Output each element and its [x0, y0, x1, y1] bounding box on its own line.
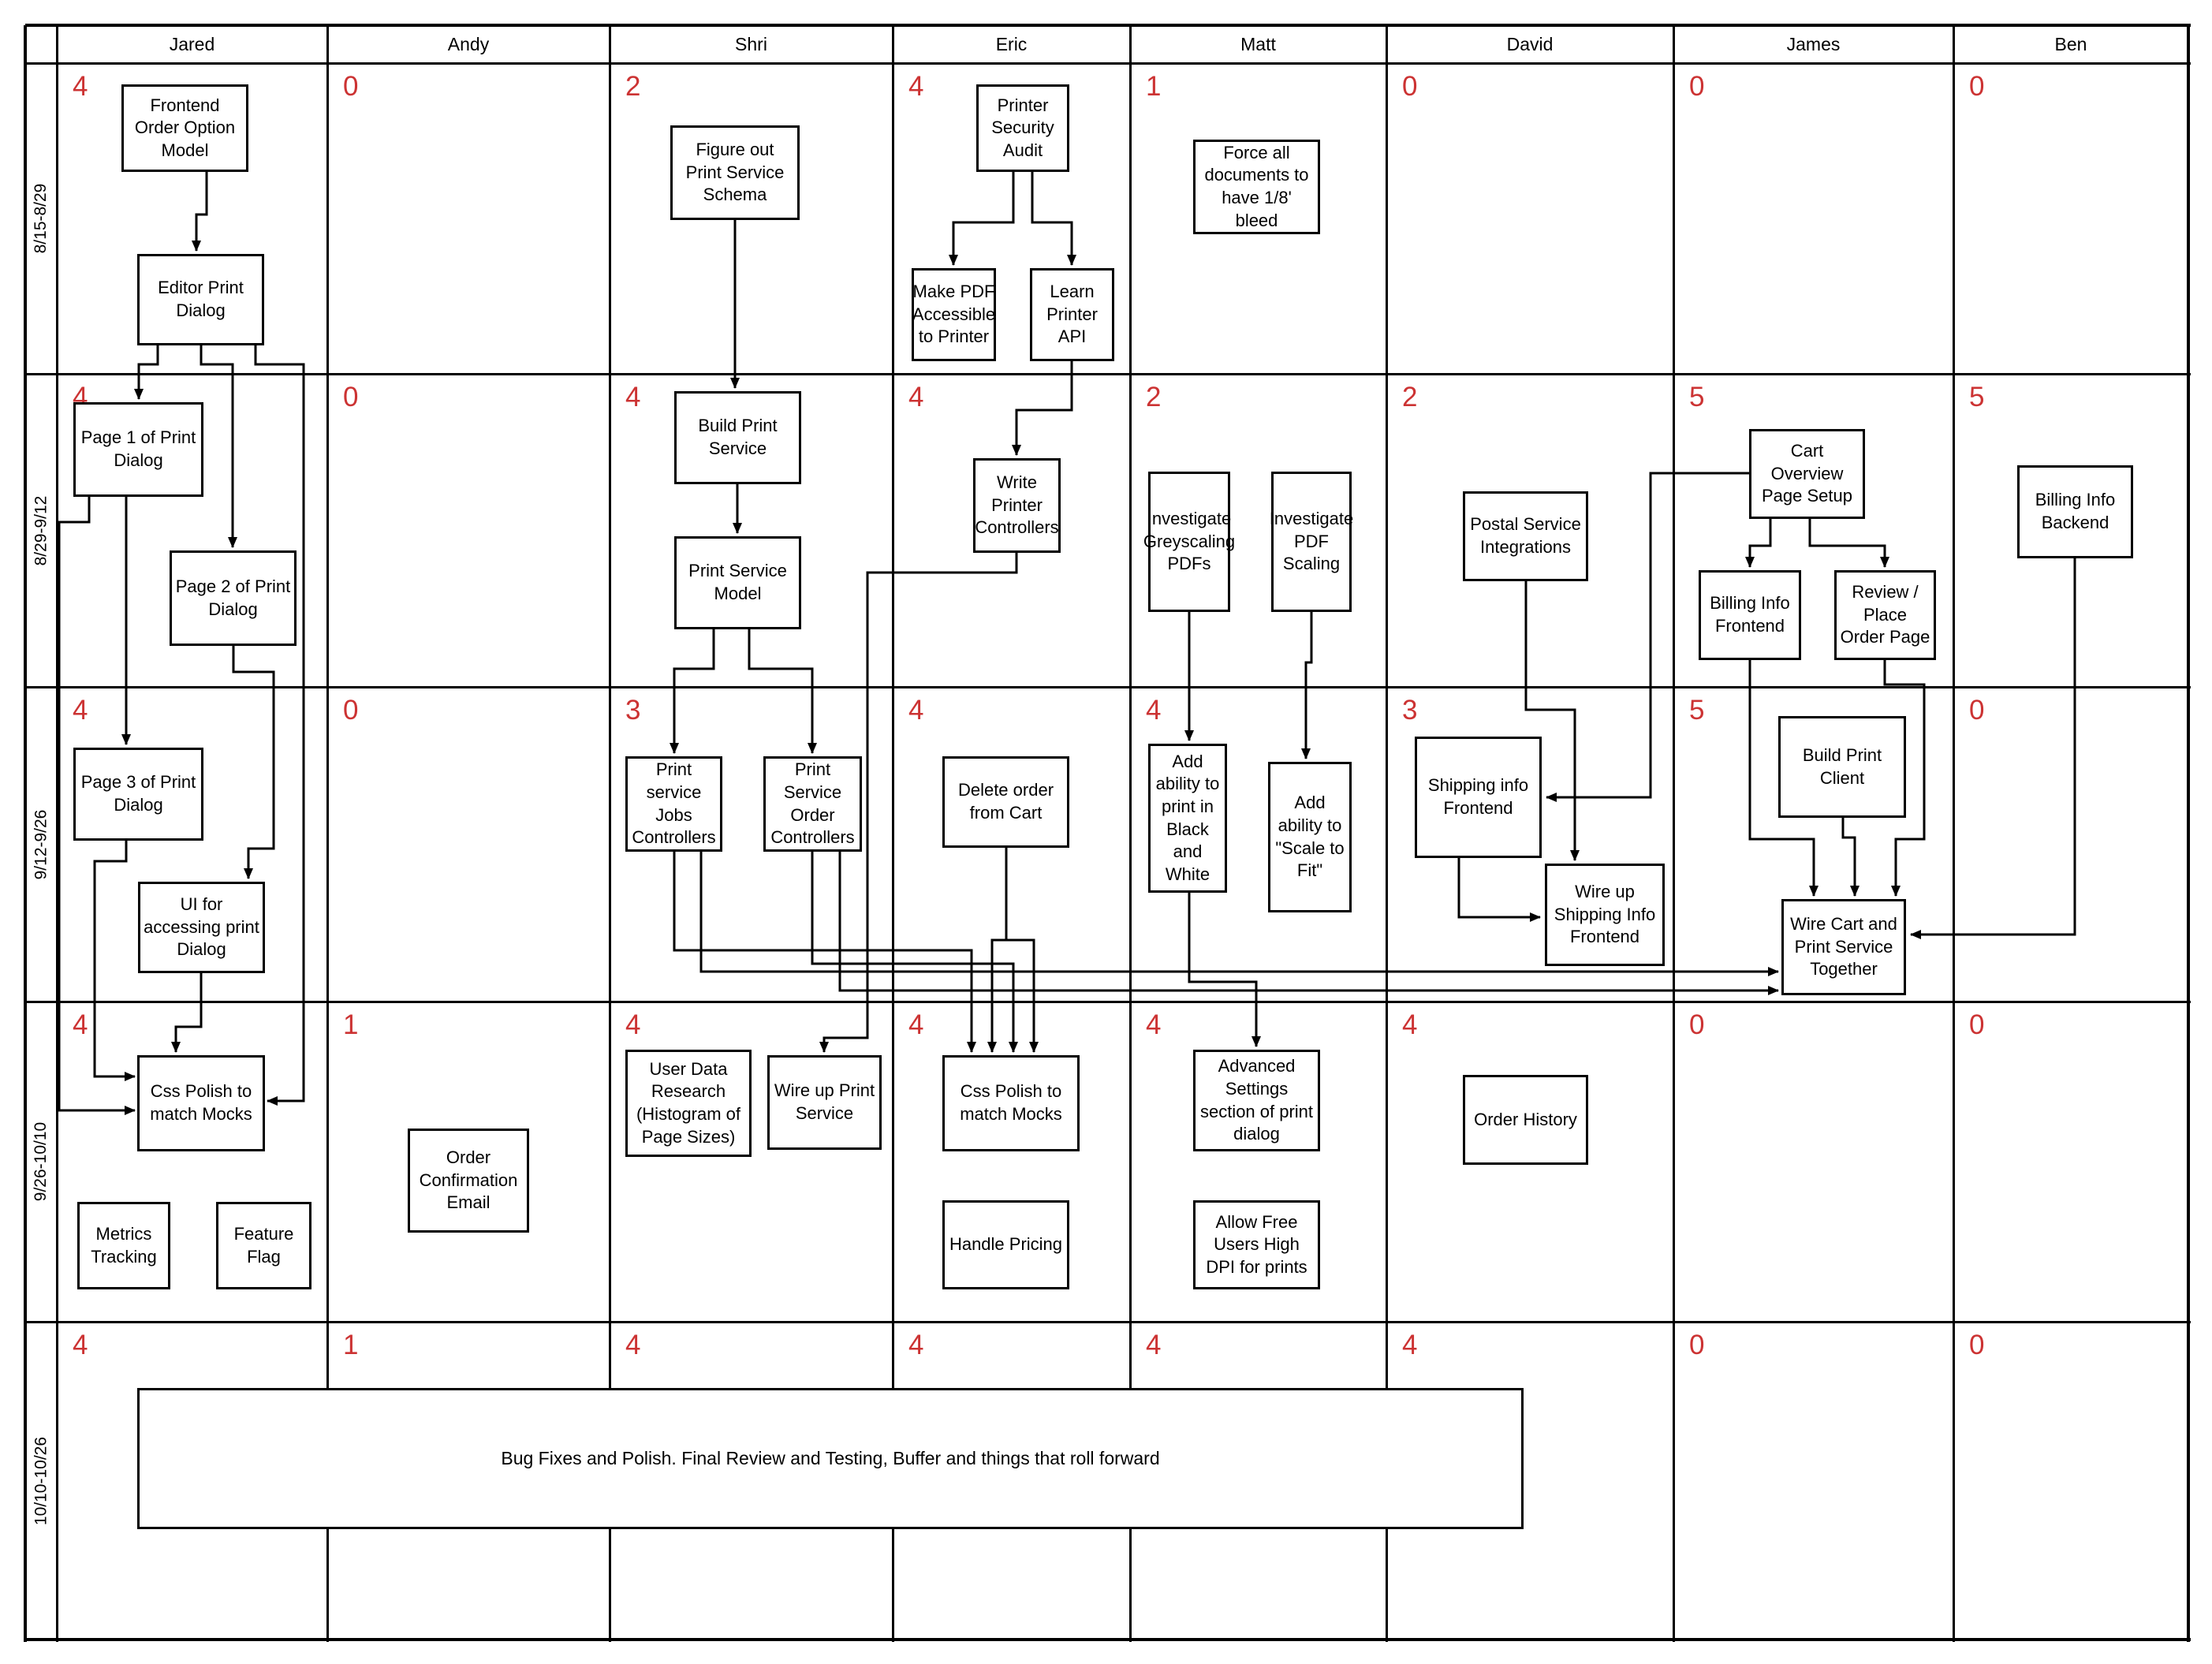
cell-task-count: 4	[908, 1331, 923, 1359]
cell-task-count: 0	[1689, 1331, 1704, 1359]
cell-task-count: 4	[908, 383, 923, 411]
column-header-matt: Matt	[1130, 25, 1386, 63]
row-label-8-15-8-29: 8/15-8/29	[25, 63, 57, 374]
cell-task-count: 4	[1146, 1011, 1161, 1039]
cell-task-count: 4	[625, 383, 640, 411]
task-frontend-order-option-model[interactable]: Frontend Order Option Model	[121, 84, 248, 172]
edge-cops-to-bif	[1750, 519, 1770, 567]
column-header-ben: Ben	[1953, 25, 2188, 63]
cell-task-count: 2	[1402, 383, 1417, 411]
swimlane-diagram: JaredAndyShriEricMattDavidJamesBen8/15-8…	[0, 0, 2212, 1664]
edge-psa-to-mpa	[953, 172, 1013, 265]
task-css-polish-to-match-mocks[interactable]: Css Polish to match Mocks	[137, 1055, 265, 1151]
column-header-david: David	[1386, 25, 1673, 63]
task-metrics-tracking[interactable]: Metrics Tracking	[77, 1202, 170, 1289]
edge-dofc-to-cpme	[1006, 848, 1034, 1052]
cell-task-count: 1	[343, 1331, 358, 1359]
edge-aabw-to-ass	[1189, 893, 1256, 1047]
cell-task-count: 4	[1402, 1011, 1417, 1039]
edge-p2-to-ui	[233, 646, 274, 879]
cell-task-count: 0	[343, 73, 358, 100]
task-page-2-of-print-dialog[interactable]: Page 2 of Print Dialog	[170, 550, 297, 646]
row-label-9-12-9-26: 9/12-9/26	[25, 687, 57, 1002]
task-bug-fixes-and-polish-final-review-and-testing-buffer-and-things-that-roll-forward[interactable]: Bug Fixes and Polish. Final Review and T…	[137, 1388, 1524, 1529]
task-build-print-client[interactable]: Build Print Client	[1778, 716, 1906, 818]
column-header-jared: Jared	[57, 25, 327, 63]
task-order-confirmation-email[interactable]: Order Confirmation Email	[408, 1129, 529, 1233]
task-css-polish-to-match-mocks[interactable]: Css Polish to match Mocks	[942, 1055, 1080, 1151]
edge-bpc-to-wcps	[1843, 818, 1855, 896]
cell-task-count: 3	[1402, 696, 1417, 724]
task-page-3-of-print-dialog[interactable]: Page 3 of Print Dialog	[73, 748, 203, 841]
cell-task-count: 4	[73, 1011, 88, 1039]
edge-psm-to-psoc	[749, 629, 812, 753]
edge-epd-to-cpmj	[256, 345, 304, 1101]
edge-epd-to-p2	[201, 345, 233, 547]
task-wire-up-print-service[interactable]: Wire up Print Service	[767, 1055, 882, 1150]
cell-task-count: 0	[1969, 1011, 1984, 1039]
row-label-10-10-10-26: 10/10-10/26	[25, 1322, 57, 1640]
cell-task-count: 0	[1969, 73, 1984, 100]
cell-task-count: 0	[1689, 73, 1704, 100]
task-postal-service-integrations[interactable]: Postal Service Integrations	[1463, 491, 1588, 581]
column-header-shri: Shri	[610, 25, 893, 63]
edge-cops-to-rpop	[1810, 519, 1885, 567]
task-ui-for-accessing-print-dialog[interactable]: UI for accessing print Dialog	[138, 882, 265, 973]
cell-task-count: 5	[1689, 696, 1704, 724]
task-figure-out-print-service-schema[interactable]: Figure out Print Service Schema	[670, 125, 800, 220]
task-review-place-order-page[interactable]: Review / Place Order Page	[1834, 570, 1936, 660]
edge-foom-to-epd	[196, 172, 207, 251]
cell-task-count: 4	[73, 696, 88, 724]
cell-task-count: 5	[1689, 383, 1704, 411]
task-write-printer-controllers[interactable]: Write Printer Controllers	[973, 458, 1061, 553]
task-wire-up-shipping-info-frontend[interactable]: Wire up Shipping Info Frontend	[1545, 864, 1665, 966]
task-feature-flag[interactable]: Feature Flag	[216, 1202, 311, 1289]
edge-lpa-to-wpc	[1016, 361, 1072, 455]
edge-psm-to-psjc	[674, 629, 714, 753]
task-force-all-documents-to-have-1-8-bleed[interactable]: Force all documents to have 1/8' bleed	[1193, 140, 1320, 234]
cell-task-count: 5	[1969, 383, 1984, 411]
task-add-ability-to-print-in-black-and-white[interactable]: Add ability to print in Black and White	[1148, 744, 1227, 893]
cell-task-count: 0	[1969, 1331, 1984, 1359]
task-delete-order-from-cart[interactable]: Delete order from Cart	[942, 756, 1069, 848]
cell-task-count: 4	[1146, 696, 1161, 724]
cell-task-count: 4	[908, 696, 923, 724]
cell-task-count: 4	[908, 1011, 923, 1039]
task-make-pdf-accessible-to-printer[interactable]: Make PDF Accessible to Printer	[912, 268, 996, 361]
task-billing-info-backend[interactable]: Billing Info Backend	[2017, 465, 2133, 558]
task-investigate-pdf-scaling[interactable]: Investigate PDF Scaling	[1271, 472, 1352, 612]
cell-task-count: 0	[1402, 73, 1417, 100]
task-build-print-service[interactable]: Build Print Service	[674, 391, 801, 484]
task-printer-security-audit[interactable]: Printer Security Audit	[976, 84, 1069, 172]
task-advanced-settings-section-of-print-dialog[interactable]: Advanced Settings section of print dialo…	[1193, 1050, 1320, 1151]
cell-task-count: 1	[1146, 73, 1161, 100]
task-editor-print-dialog[interactable]: Editor Print Dialog	[137, 254, 264, 345]
cell-task-count: 4	[1146, 1331, 1161, 1359]
task-shipping-info-frontend[interactable]: Shipping info Frontend	[1415, 737, 1542, 858]
cell-task-count: 0	[1969, 696, 1984, 724]
column-header-eric: Eric	[893, 25, 1130, 63]
edge-p3-to-cpmj	[95, 841, 135, 1076]
cell-task-count: 4	[625, 1011, 640, 1039]
task-add-ability-to-scale-to-fit[interactable]: Add ability to "Scale to Fit"	[1268, 762, 1352, 912]
cell-task-count: 0	[343, 696, 358, 724]
cell-task-count: 3	[625, 696, 640, 724]
row-label-8-29-9-12: 8/29-9/12	[25, 374, 57, 687]
row-label-9-26-10-10: 9/26-10/10	[25, 1002, 57, 1322]
cell-task-count: 0	[1689, 1011, 1704, 1039]
task-handle-pricing[interactable]: Handle Pricing	[942, 1200, 1069, 1289]
edge-dofc-to-cpme	[992, 848, 1006, 1052]
column-header-james: James	[1673, 25, 1953, 63]
task-page-1-of-print-dialog[interactable]: Page 1 of Print Dialog	[73, 402, 203, 497]
cell-task-count: 4	[1402, 1331, 1417, 1359]
edge-sif-to-wusif	[1459, 858, 1540, 917]
cell-task-count: 4	[908, 73, 923, 100]
cell-task-count: 2	[625, 73, 640, 100]
task-cart-overview-page-setup[interactable]: Cart Overview Page Setup	[1749, 429, 1865, 519]
task-user-data-research-histogram-of-page-sizes[interactable]: User Data Research (Histogram of Page Si…	[625, 1050, 752, 1157]
task-allow-free-users-high-dpi-for-prints[interactable]: Allow Free Users High DPI for prints	[1193, 1200, 1320, 1289]
task-wire-cart-and-print-service-together[interactable]: Wire Cart and Print Service Together	[1781, 899, 1906, 995]
task-billing-info-frontend[interactable]: Billing Info Frontend	[1699, 570, 1801, 660]
task-learn-printer-api[interactable]: Learn Printer API	[1030, 268, 1114, 361]
cell-task-count: 1	[343, 1011, 358, 1039]
task-order-history[interactable]: Order History	[1463, 1075, 1588, 1165]
edge-ui-to-cpmj	[176, 973, 201, 1052]
cell-task-count: 4	[625, 1331, 640, 1359]
cell-task-count: 4	[73, 1331, 88, 1359]
edge-psa-to-lpa	[1032, 172, 1072, 265]
task-print-service-order-controllers[interactable]: Print Service Order Controllers	[763, 756, 862, 852]
edge-epd-to-p1	[139, 345, 158, 399]
column-header-andy: Andy	[327, 25, 610, 63]
cell-task-count: 2	[1146, 383, 1161, 411]
cell-task-count: 4	[73, 73, 88, 100]
edge-ips-to-astf	[1306, 612, 1311, 759]
task-print-service-jobs-controllers[interactable]: Print service Jobs Controllers	[625, 756, 722, 852]
cell-task-count: 0	[343, 383, 358, 411]
task-print-service-model[interactable]: Print Service Model	[674, 536, 801, 629]
edge-psjc-to-cpme	[674, 852, 972, 1052]
task-investigate-greyscaling-pdfs[interactable]: Investigate Greyscaling PDFs	[1148, 472, 1230, 612]
